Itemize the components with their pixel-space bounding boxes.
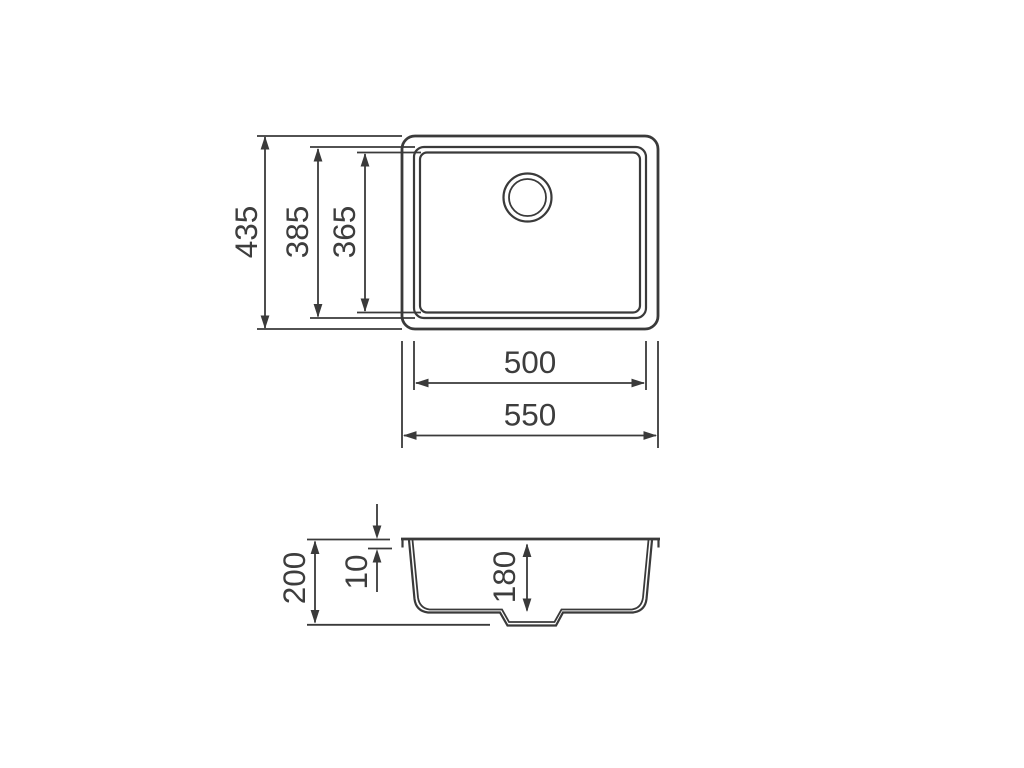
arrowhead-down (373, 526, 382, 540)
dim-label-bowl-inner-height: 365 (326, 206, 362, 259)
dim-label-rim-opening-height: 385 (279, 206, 315, 259)
arrowhead-right (644, 431, 658, 440)
arrowhead-left (403, 431, 417, 440)
drain-inner-circle (509, 179, 546, 216)
arrowhead-up (523, 544, 532, 558)
dimension-overall-height: 435 (228, 136, 402, 329)
dim-label-overall-width: 550 (504, 397, 557, 433)
bowl-section-inner-surface (413, 540, 649, 622)
arrowhead-up (314, 148, 323, 162)
arrowhead-down (361, 299, 370, 313)
dim-label-overall-depth: 200 (276, 552, 312, 605)
bowl-section-outer-surface (409, 540, 652, 626)
arrowhead-up (261, 136, 270, 150)
side-view: 200 10 180 (276, 504, 660, 626)
arrowhead-down (311, 610, 320, 624)
dim-label-bowl-inner-width: 500 (504, 344, 557, 380)
arrowhead-down (523, 599, 532, 613)
sink-technical-drawing: 435 385 365 500 (0, 0, 1024, 768)
arrowhead-down (314, 304, 323, 318)
dimension-bowl-inner-width: 500 (414, 341, 646, 390)
technical-drawing-page: 435 385 365 500 (0, 0, 1024, 768)
bowl-rim-inner-edge (420, 153, 640, 313)
dim-label-bowl-depth: 180 (486, 551, 522, 604)
dimension-bowl-inner-height: 365 (326, 153, 421, 313)
top-view: 435 385 365 500 (228, 136, 658, 448)
arrowhead-down (261, 316, 270, 330)
drain-outer-circle (504, 174, 552, 222)
sink-outer-edge (402, 136, 658, 329)
dimension-rim-thickness: 10 (338, 504, 392, 592)
arrowhead-left (415, 379, 429, 388)
arrowhead-up (361, 153, 370, 167)
dim-label-rim-thickness: 10 (338, 554, 374, 589)
arrowhead-right (632, 379, 646, 388)
dim-label-overall-height: 435 (228, 206, 264, 259)
dimension-bowl-depth: 180 (486, 544, 531, 613)
